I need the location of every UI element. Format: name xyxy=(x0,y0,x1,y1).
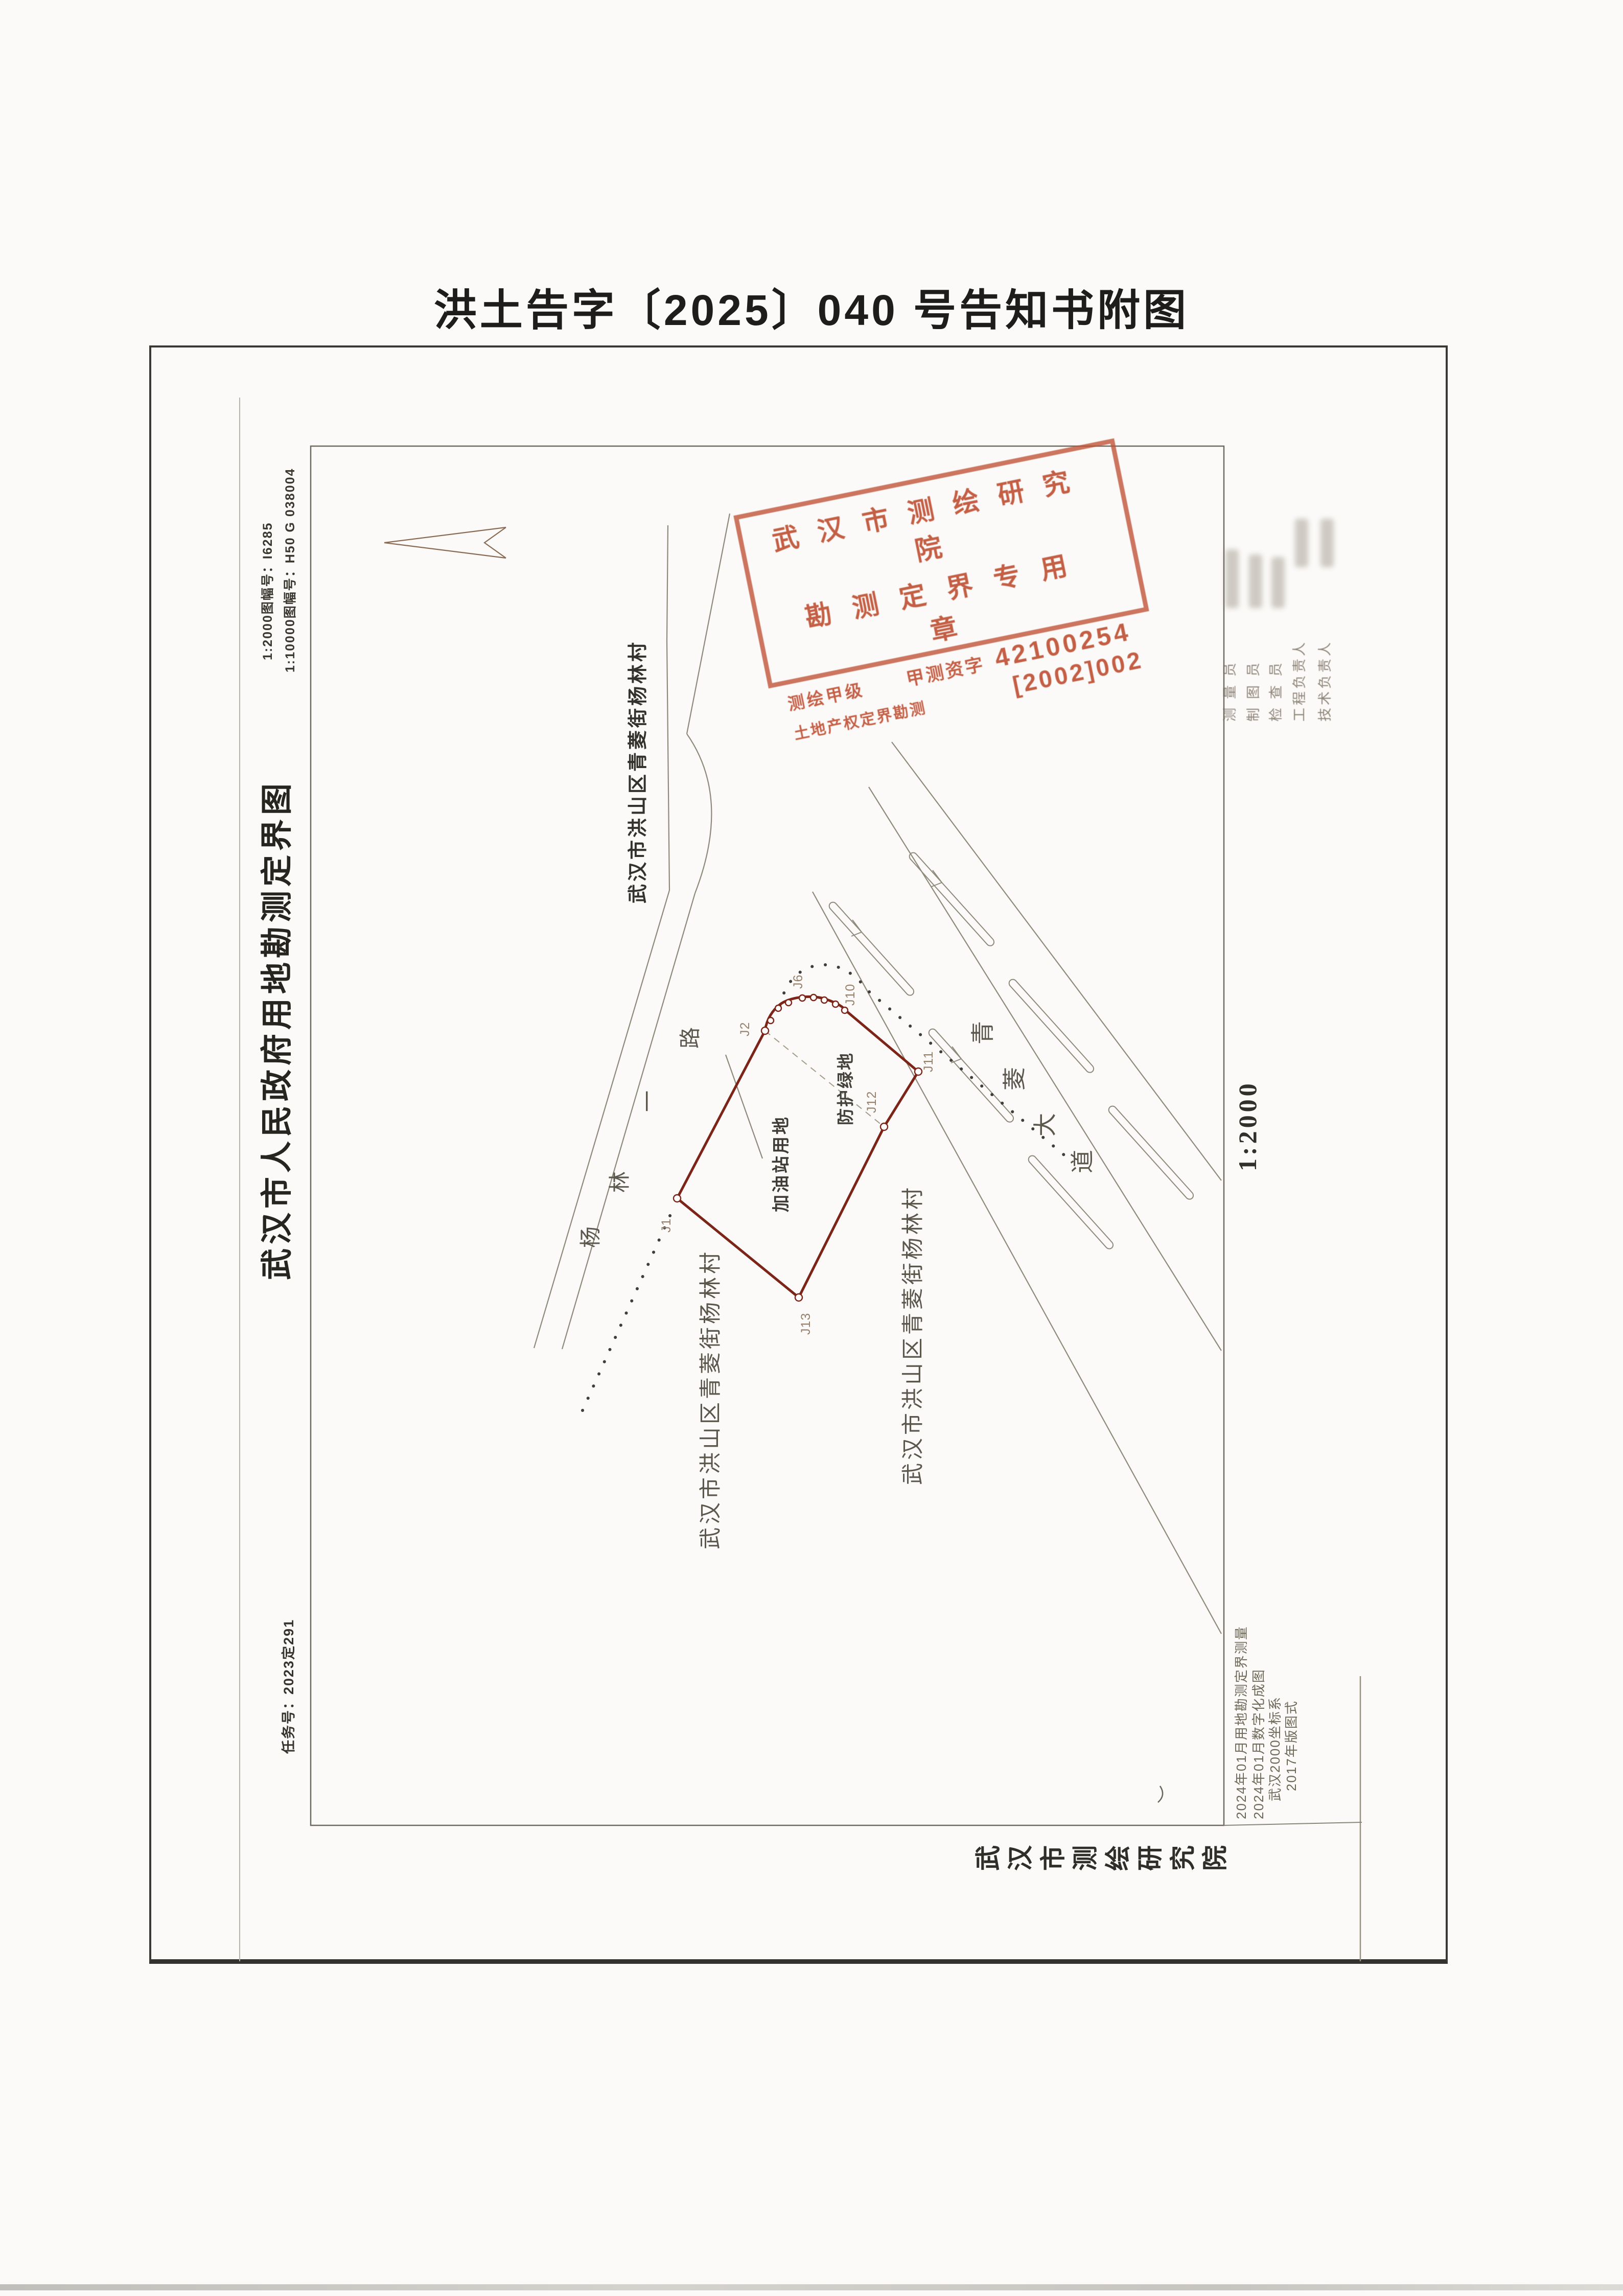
signature-row-checker: 检查员 xyxy=(1269,654,1283,722)
signature-name-smudge xyxy=(1295,519,1308,567)
task-number: 任务号：2023定291 xyxy=(282,1619,296,1754)
map-scale: 1:2000 xyxy=(1235,1080,1260,1171)
signature-name-smudge xyxy=(1271,557,1285,608)
signature-row-surveyor: 测量员 xyxy=(1223,654,1237,722)
road-yanglin-char-3: 一 xyxy=(637,1091,659,1112)
road-qingling-char-4: 道 xyxy=(1071,1150,1094,1173)
road-yanglin-char-1: 杨 xyxy=(580,1226,601,1248)
village-label-right: 武汉市洪山区青菱街杨林村 xyxy=(902,1185,924,1485)
note-digitized-date: 2024年01月数字化成图 xyxy=(1252,1668,1265,1819)
publisher-char: 市 xyxy=(1038,1843,1068,1873)
map-sheet-title: 武汉市人民政府用地勘测定界图 xyxy=(262,779,293,1280)
note-symbology-edition: 2017年版图式 xyxy=(1285,1700,1298,1791)
vertex-label-j1: J1 xyxy=(660,1218,673,1233)
vertex-label-j11: J11 xyxy=(922,1051,935,1072)
vertex-label-j12: J12 xyxy=(866,1091,878,1113)
parcel-label: 加油站用地 xyxy=(773,1115,790,1212)
vertex-label-j10: J10 xyxy=(844,984,857,1006)
publisher-char: 绘 xyxy=(1103,1843,1133,1873)
publisher-char: 究 xyxy=(1168,1843,1198,1873)
publisher-name: 武 汉 市 测 绘 研 究 院 xyxy=(973,1842,1230,1874)
village-label-left: 武汉市洪山区青菱街杨林村 xyxy=(700,1249,722,1549)
publisher-char: 汉 xyxy=(1006,1843,1035,1873)
road-yanglin-char-2: 林 xyxy=(609,1171,631,1193)
sheet-number-10000: 1:10000图幅号：H50 G 038004 xyxy=(284,468,297,672)
signature-row-project-lead: 工程负责人 xyxy=(1293,640,1307,722)
road-qingling-char-3: 大 xyxy=(1033,1113,1057,1137)
road-yanglin-char-4: 路 xyxy=(680,1027,701,1049)
road-qingling-char-1: 青 xyxy=(971,1021,994,1045)
signature-row-tech-lead: 技术负责人 xyxy=(1318,640,1332,722)
vertex-label-j2: J2 xyxy=(739,1022,752,1036)
signature-name-smudge xyxy=(1225,549,1239,608)
vertex-label-j13: J13 xyxy=(800,1313,813,1335)
green-belt-label: 防护绿地 xyxy=(837,1052,854,1125)
signature-name-smudge xyxy=(1320,519,1334,567)
note-coordinate-system: 武汉2000坐标系 xyxy=(1268,1696,1282,1801)
publisher-char: 院 xyxy=(1200,1843,1230,1873)
signature-row-drafter: 制图员 xyxy=(1247,654,1261,722)
page-title: 洪土告字〔2025〕040 号告知书附图 xyxy=(0,276,1623,338)
publisher-char: 研 xyxy=(1135,1843,1165,1873)
vertex-label-j6: J6 xyxy=(792,975,805,989)
publisher-char: 武 xyxy=(973,1843,1003,1873)
village-label-top: 武汉市洪山区青菱街杨林村 xyxy=(629,640,648,903)
road-qingling-char-2: 菱 xyxy=(1003,1067,1026,1091)
signature-name-smudge xyxy=(1249,554,1262,608)
publisher-char: 测 xyxy=(1071,1843,1100,1873)
sheet-number-2000: 1:2000图幅号：I6285 xyxy=(262,522,274,660)
note-survey-date: 2024年01月用地勘测定界测量 xyxy=(1235,1626,1248,1819)
scan-artifact-bar xyxy=(0,2284,1623,2290)
